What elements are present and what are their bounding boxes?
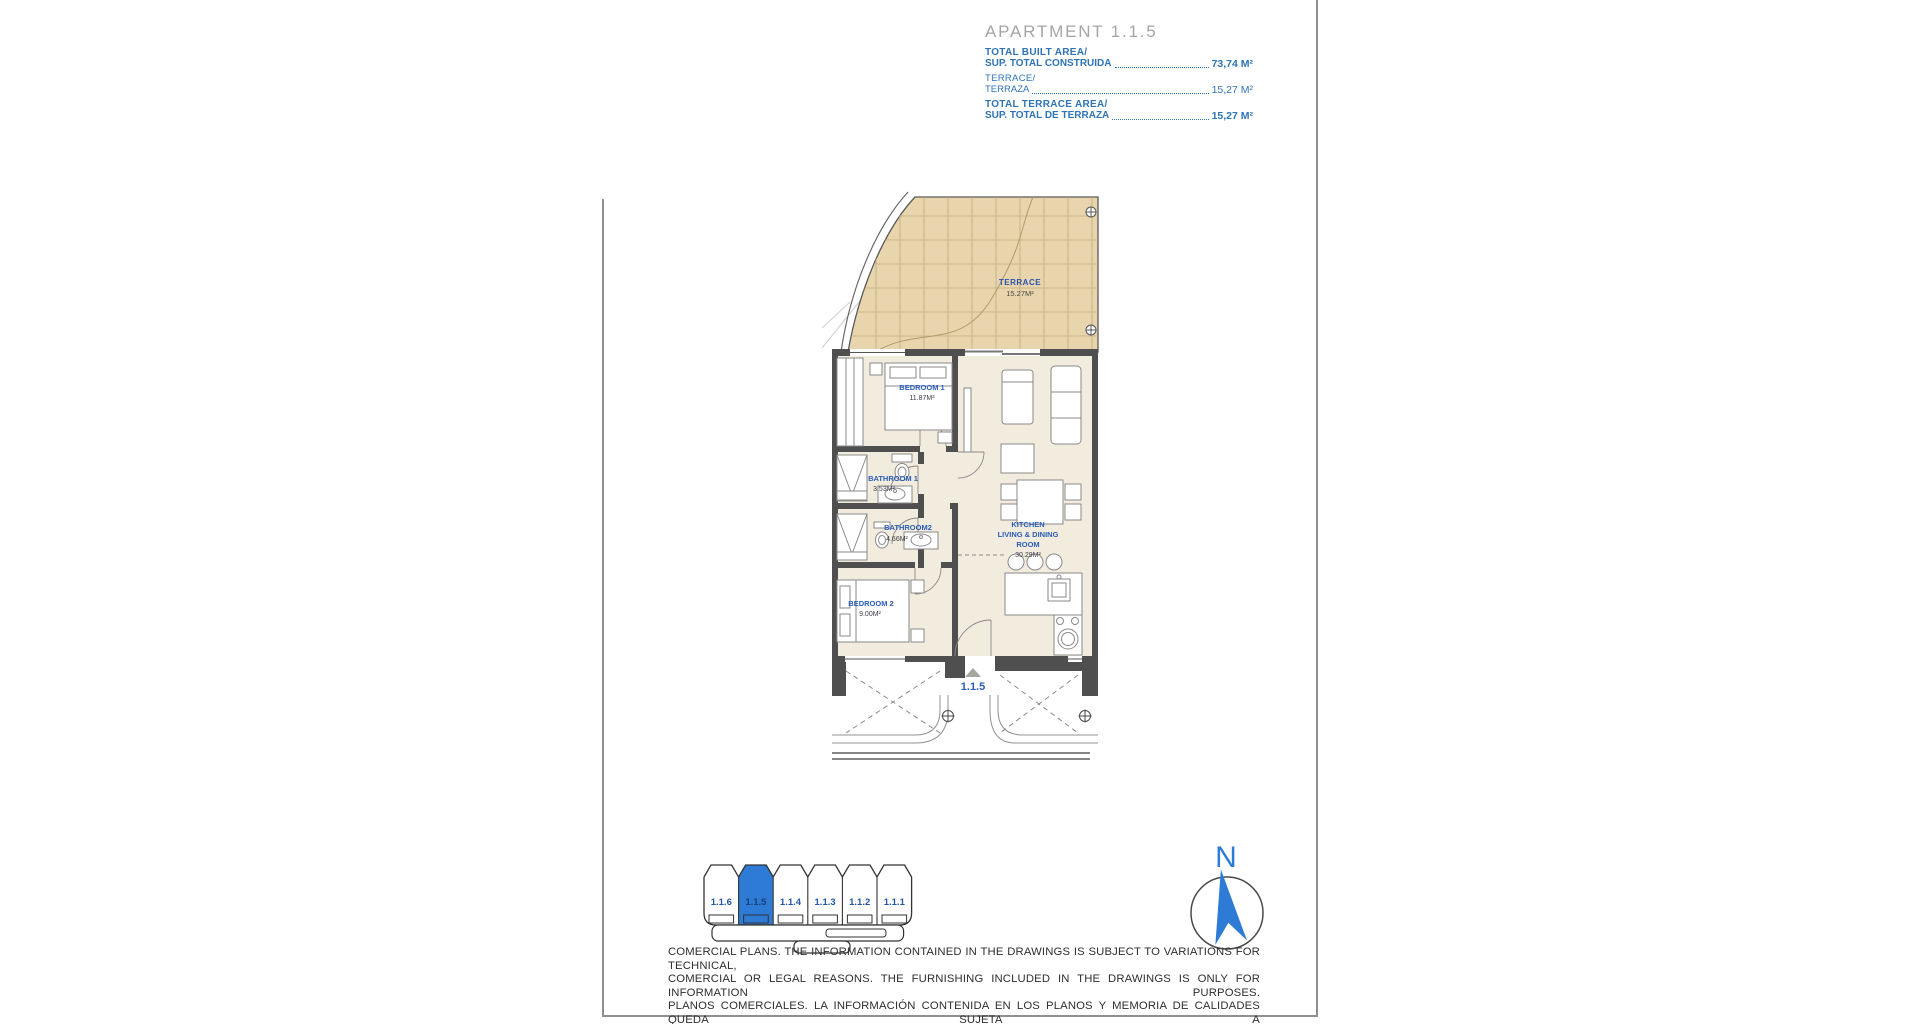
- kitchen-area: 30.29M²: [1015, 552, 1041, 559]
- unit-1-1-3-label: 1.1.3: [815, 897, 836, 908]
- area-row-total-terrace: TOTAL TERRACE AREA/ SUP. TOTAL DE TERRAZ…: [985, 99, 1253, 122]
- unit-marker-label: 1.1.5: [961, 681, 985, 693]
- terrace-area: 15.27M²: [1006, 289, 1034, 298]
- bathroom1-label: BATHROOM 1: [868, 474, 918, 483]
- apartment-header: APARTMENT 1.1.5 TOTAL BUILT AREA/ SUP. T…: [985, 22, 1253, 125]
- bedroom1-label: BEDROOM 1: [899, 383, 944, 392]
- porch-curbs: [832, 695, 1098, 743]
- dotted-leader: [1112, 119, 1208, 120]
- kitchen-label-3: ROOM: [1016, 540, 1039, 549]
- unit-1-1-4-label: 1.1.4: [780, 897, 802, 908]
- disclaimer-line: COMERCIAL OR LEGAL REASONS. THE FURNISHI…: [668, 973, 1260, 1000]
- area-row-terrace: TERRACE/ TERRAZA 15,27 M²: [985, 73, 1253, 96]
- sheet-right-border: [1316, 0, 1318, 1016]
- north-compass-icon: N: [1180, 833, 1280, 958]
- bathroom2-label: BATHROOM2: [884, 523, 932, 532]
- dotted-leader: [1032, 93, 1208, 94]
- total-terrace-area-value: 15,27 M²: [1212, 110, 1253, 122]
- plan-sheet-page: APARTMENT 1.1.5 TOTAL BUILT AREA/ SUP. T…: [0, 0, 1920, 1024]
- dotted-leader: [1115, 67, 1209, 68]
- disclaimer-line: PLANOS COMERCIALES. LA INFORMACIÓN CONTE…: [668, 1000, 1260, 1024]
- sheet-left-border: [602, 199, 604, 1016]
- unit-1-1-5-label: 1.1.5: [745, 897, 767, 908]
- page-title: APARTMENT 1.1.5: [985, 22, 1253, 42]
- bedroom2-label: BEDROOM 2: [848, 599, 893, 608]
- kitchen-label-1: KITCHEN: [1011, 520, 1044, 529]
- porch-area: 1.1.5: [832, 656, 1098, 759]
- disclaimer-text: COMERCIAL PLANS. THE INFORMATION CONTAIN…: [668, 946, 1260, 1024]
- area-row-built: TOTAL BUILT AREA/ SUP. TOTAL CONSTRUIDA …: [985, 47, 1253, 70]
- north-arrow-icon: [1205, 867, 1247, 945]
- location-triangle-icon: [965, 668, 981, 677]
- compass-north-label: N: [1215, 841, 1237, 874]
- unit-1-1-6-label: 1.1.6: [711, 897, 732, 908]
- terrace-label: TERRACE: [999, 278, 1041, 287]
- bathroom2-area: 4.66M²: [886, 536, 908, 543]
- built-area-value: 73,74 M²: [1212, 58, 1253, 70]
- unit-1-1-2-label: 1.1.2: [849, 897, 870, 908]
- bathroom1-area: 3.53M²: [873, 486, 895, 493]
- terrace-area: [841, 190, 1098, 352]
- key-plan-roof-notches: [704, 865, 912, 877]
- key-plan-base-slot: [826, 929, 886, 937]
- bedroom2-area: 9.00M²: [859, 611, 881, 618]
- terrace-area-value: 15,27 M²: [1212, 84, 1253, 96]
- kitchen-label-2: LIVING & DINING: [998, 530, 1059, 539]
- unit-1-1-1-label: 1.1.1: [884, 897, 906, 908]
- section-divider-lines: [832, 753, 1090, 759]
- floor-plan-drawing: 1.1.5 TERRACE 15.27M² BEDROOM 1 11.87M² …: [820, 190, 1110, 770]
- compass-drawing: N: [1180, 833, 1280, 958]
- bedroom1-area: 11.87M²: [909, 395, 935, 402]
- disclaimer-line: COMERCIAL PLANS. THE INFORMATION CONTAIN…: [668, 946, 1260, 973]
- floor-plan: 1.1.5 TERRACE 15.27M² BEDROOM 1 11.87M² …: [820, 190, 1110, 770]
